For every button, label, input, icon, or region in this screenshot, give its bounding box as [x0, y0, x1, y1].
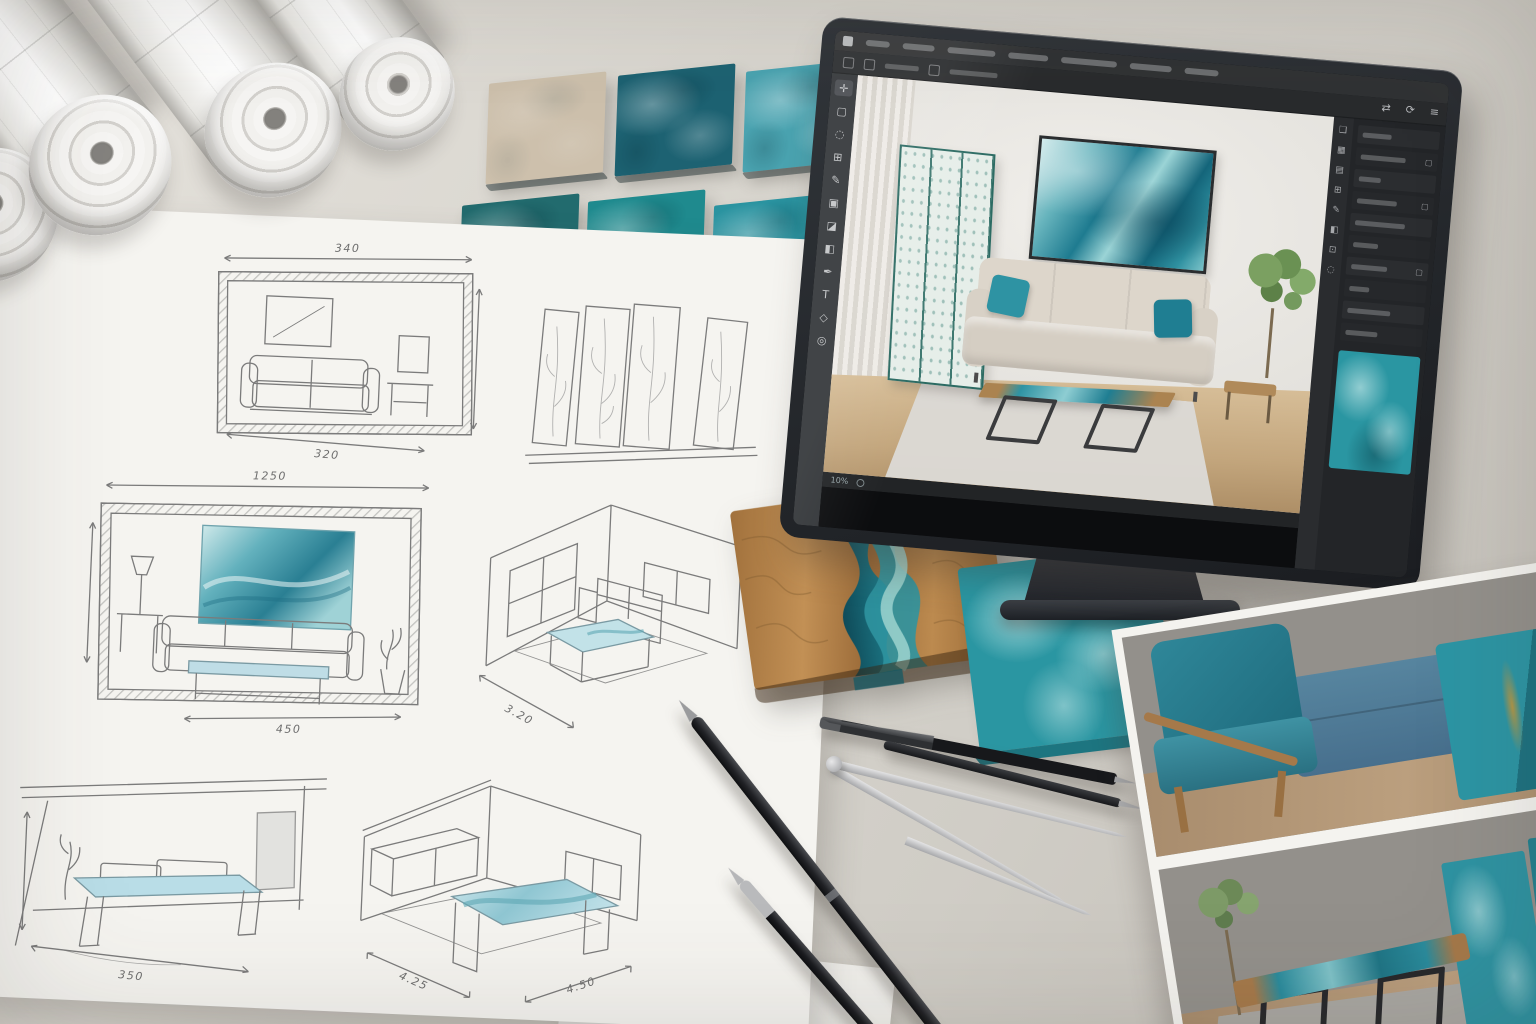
panel-row[interactable]: [1342, 300, 1425, 325]
designer-desk-scene: 340 320: [0, 0, 1536, 1024]
dimension-label: 1250: [253, 469, 287, 482]
gradient-tool-icon[interactable]: ◧: [820, 240, 839, 258]
dimension-label: 340: [335, 242, 361, 255]
living-room-render[interactable]: [823, 75, 1334, 513]
panel-row[interactable]: ▢: [1355, 147, 1438, 172]
marquee-tool-icon[interactable]: ▢: [832, 102, 851, 120]
drawing-living-room-elevation: 340 320: [188, 235, 497, 468]
layers-icon[interactable]: ❏: [1339, 125, 1348, 136]
panel-row[interactable]: ▢: [1345, 257, 1428, 282]
thumbnail-texture: [1329, 350, 1421, 475]
deep-teal-swatch: [615, 63, 736, 176]
menu-icon[interactable]: ≡: [1429, 105, 1439, 119]
canvas-area[interactable]: 10%: [818, 75, 1334, 568]
teal-resin-bench: [1232, 938, 1483, 1024]
panel-row[interactable]: [1357, 125, 1440, 150]
eraser-tool-icon[interactable]: ◪: [822, 217, 841, 235]
stamp-tool-icon[interactable]: ▣: [824, 194, 843, 212]
menu-item[interactable]: [1130, 63, 1172, 73]
drawing-isometric-room: 3.20: [451, 477, 762, 748]
lasso-tool-icon[interactable]: ◌: [830, 125, 849, 143]
menu-item[interactable]: [1061, 57, 1117, 68]
teal-texture-thumbnail[interactable]: [1329, 350, 1421, 475]
teal-pillow: [986, 274, 1031, 319]
teal-armchair: [1131, 619, 1331, 836]
menu-item[interactable]: [902, 43, 934, 52]
armchair-wood-leg: [1274, 771, 1286, 818]
drawing-dining-table-elevation: 350: [0, 747, 340, 995]
beige-stone-swatch: [486, 71, 607, 184]
armchair-wood-leg: [1174, 786, 1189, 833]
menu-item[interactable]: [1008, 52, 1048, 61]
tree-trunk: [1265, 308, 1274, 378]
panel-row[interactable]: [1349, 213, 1432, 238]
status-icon: [856, 478, 865, 487]
menu-item[interactable]: [947, 47, 995, 57]
tool-option-field[interactable]: [949, 69, 997, 78]
panel-row[interactable]: [1344, 278, 1427, 303]
gradient-icon[interactable]: ◧: [1330, 225, 1339, 236]
app-body: ✛ ▢ ◌ ⊞ ✎ ▣ ◪ ◧ ✒ T ◇ ◎: [793, 73, 1446, 578]
menu-item[interactable]: [1184, 68, 1218, 77]
tool-option-icon[interactable]: [843, 56, 855, 68]
drawing-folding-screen-panels: [512, 285, 770, 486]
swatch-texture: [486, 71, 607, 184]
panel-row[interactable]: [1353, 169, 1436, 194]
zoom-tool-icon[interactable]: ◎: [812, 331, 831, 349]
render-sofa: [960, 256, 1221, 396]
drawing-sofa-wall-art-elevation: 1250 450: [66, 460, 452, 744]
brush-tool-icon[interactable]: ✎: [826, 171, 845, 189]
crop-tool-icon[interactable]: ⊞: [828, 148, 847, 166]
move-tool-icon[interactable]: ✛: [834, 79, 853, 97]
pen-tool-icon[interactable]: ✒: [818, 263, 837, 281]
tree-foliage: [1196, 886, 1230, 920]
table-leg-frame: [985, 395, 1058, 444]
history-icon[interactable]: ◌: [1326, 265, 1335, 276]
render-side-table: [1221, 380, 1276, 424]
tool-option-field[interactable]: [885, 63, 919, 71]
blueprint-sheet: 340 320: [0, 204, 843, 1024]
adjustments-icon[interactable]: ⊞: [1334, 185, 1342, 196]
table-leg-frame: [1083, 404, 1156, 453]
dimension-label: 320: [314, 447, 340, 462]
panel-row[interactable]: [1347, 235, 1430, 260]
side-table-leg: [1225, 392, 1230, 420]
render-teal-wall-art: [1029, 135, 1217, 274]
tool-option-icon[interactable]: [864, 58, 876, 70]
teal-pillow: [1154, 299, 1193, 338]
compass-leg: [904, 836, 1093, 919]
swatches-icon[interactable]: ⊡: [1328, 245, 1336, 256]
shape-tool-icon[interactable]: ◇: [814, 308, 833, 326]
channels-icon[interactable]: ▦: [1337, 145, 1346, 156]
tool-option-icon[interactable]: [928, 64, 940, 76]
brush-settings-icon[interactable]: ✎: [1332, 205, 1340, 216]
side-table-leg: [1266, 395, 1271, 423]
panel-row[interactable]: [1340, 322, 1423, 347]
paths-icon[interactable]: ▤: [1335, 165, 1344, 176]
drawing-isometric-sofa-table: 4.25 4.50: [329, 751, 670, 1017]
panel-header-icons: ⇄ ⟳ ≡: [1381, 101, 1440, 119]
menu-item[interactable]: [866, 40, 890, 48]
resin-tabletop: [74, 868, 263, 904]
compass-hinge: [826, 756, 842, 772]
botanical-pattern: [543, 312, 733, 444]
text-tool-icon[interactable]: T: [816, 285, 835, 303]
dimension-label: 350: [118, 968, 145, 983]
dimension-label: 4.50: [565, 974, 598, 996]
app-logo: [842, 36, 853, 47]
link-icon[interactable]: ⇄: [1381, 101, 1391, 115]
dimension-label: 3.20: [503, 702, 536, 728]
zoom-level: 10%: [830, 475, 848, 486]
design-app-window: ⇄ ⟳ ≡ ✛ ▢ ◌ ⊞ ✎ ▣ ◪ ◧ ✒ T ◇: [793, 30, 1450, 578]
sofa-leg: [974, 372, 979, 382]
dimension-label: 450: [276, 723, 302, 736]
panel-row[interactable]: ▢: [1351, 191, 1434, 216]
swatch-texture: [615, 63, 736, 176]
resin-tabletop: [547, 616, 654, 655]
photo-print-sheet: [1111, 560, 1536, 1024]
monitor: ⇄ ⟳ ≡ ✛ ▢ ◌ ⊞ ✎ ▣ ◪ ◧ ✒ T ◇: [779, 16, 1464, 592]
refresh-icon[interactable]: ⟳: [1405, 103, 1415, 117]
tree-foliage: [1247, 252, 1284, 289]
